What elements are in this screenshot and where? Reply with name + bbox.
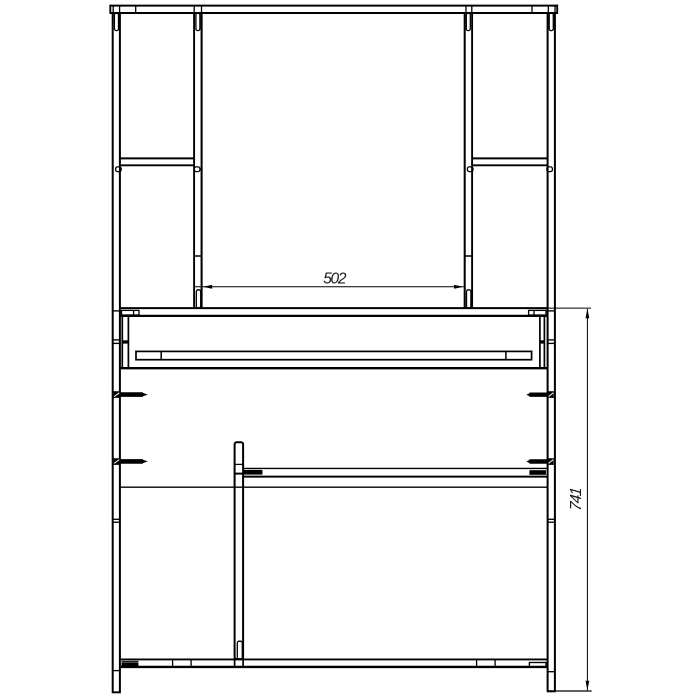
svg-text:502: 502 <box>323 271 347 288</box>
svg-text:741: 741 <box>567 487 585 512</box>
